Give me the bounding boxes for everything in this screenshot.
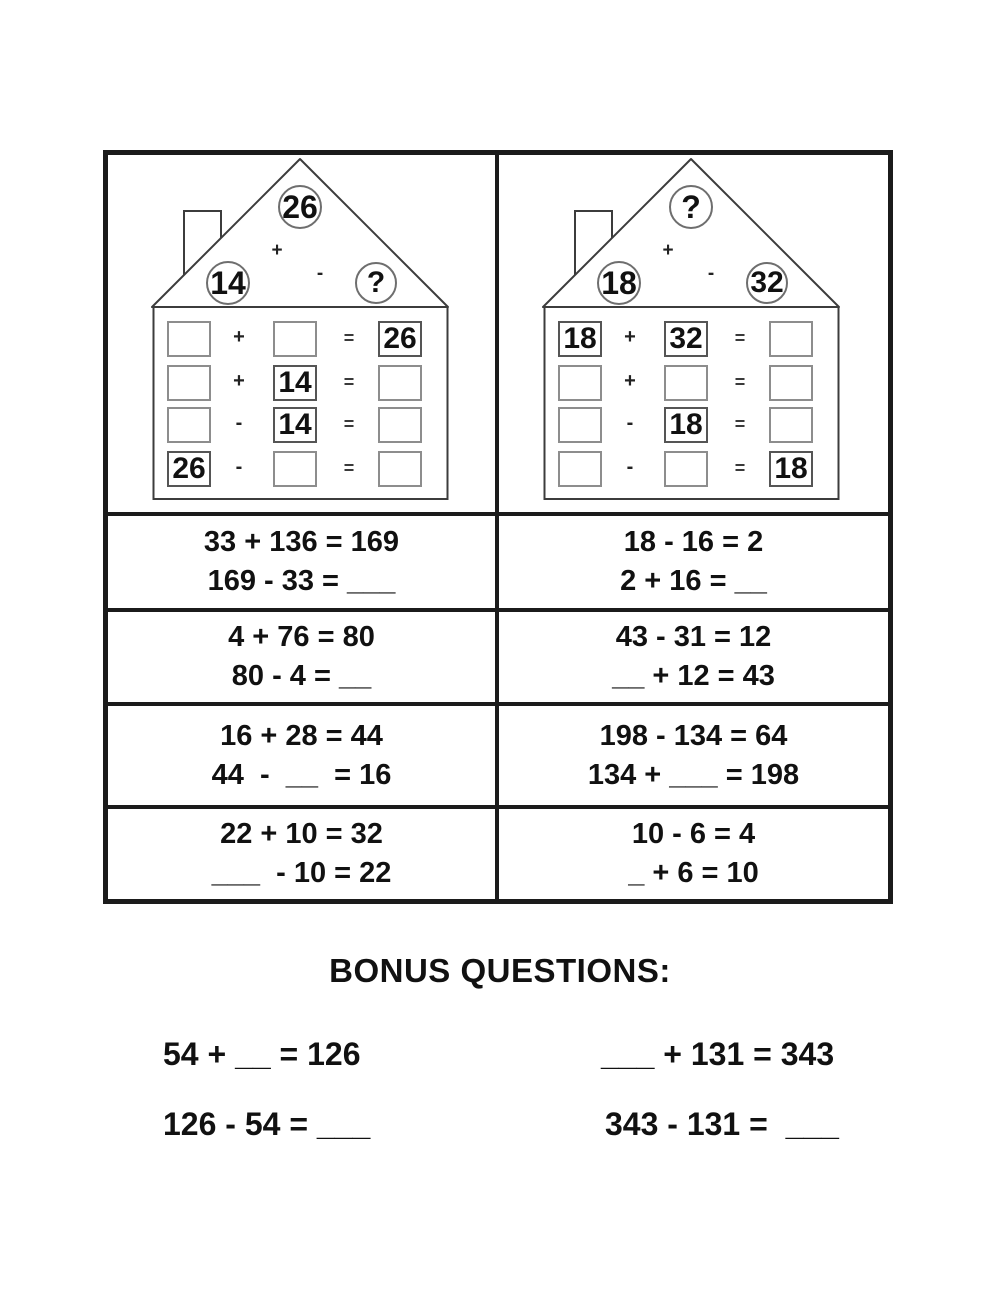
equals-sign: = [337,328,361,349]
fact-family-house-left: 26 + - 14 ? + = 26 + 14 = [108,155,495,512]
plus-sign: + [618,326,642,349]
house-box-a[interactable] [167,321,211,357]
bonus-equation: 126 - 54 = ___ [163,1106,370,1143]
house-box-c: 18 [769,451,813,487]
house-row: - = 18 [544,451,839,487]
problem-line: 43 - 31 = 12 [616,618,772,657]
house-cell-left: 26 + - 14 ? + = 26 + 14 = [108,155,499,512]
house-box-a[interactable] [558,407,602,443]
roof-minus-sign: - [699,263,723,285]
house-box-c[interactable] [378,365,422,401]
minus-sign: - [227,456,251,479]
minus-sign: - [618,456,642,479]
house-box-b: 14 [273,365,317,401]
bonus-equation: ___ + 131 = 343 [601,1036,834,1073]
roof-addend-left-circle: 18 [597,261,641,305]
problem-cell: 18 - 16 = 2 2 + 16 = __ [499,512,888,608]
house-cell-right: ? + - 18 32 18 + 32 = + = [499,155,888,512]
house-row: + = 26 [153,321,448,357]
house-box-b: 32 [664,321,708,357]
problem-line: 44 - __ = 16 [212,756,392,795]
problem-line: __ + 12 = 43 [612,657,775,696]
plus-sign: + [227,370,251,393]
roof-sum-circle: 26 [278,185,322,229]
house-row: + 14 = [153,365,448,401]
house-box-b[interactable] [664,451,708,487]
roof-addend-right-circle: 32 [746,262,788,304]
plus-sign: + [618,370,642,393]
house-box-a[interactable] [167,365,211,401]
problem-line: ___ - 10 = 22 [212,854,392,893]
house-box-c[interactable] [769,365,813,401]
bonus-title: BONUS QUESTIONS: [0,952,1000,990]
house-box-c: 26 [378,321,422,357]
house-box-c[interactable] [378,451,422,487]
problem-cell: 4 + 76 = 80 80 - 4 = __ [108,608,499,702]
minus-sign: - [227,412,251,435]
house-equation-rows: 18 + 32 = + = - 18 = [544,307,839,499]
house-row: - 14 = [153,407,448,443]
problem-cell: 16 + 28 = 44 44 - __ = 16 [108,702,499,805]
problem-line: 134 + ___ = 198 [588,756,799,795]
problem-line: 198 - 134 = 64 [600,717,788,756]
equals-sign: = [728,414,752,435]
house-row: + = [544,365,839,401]
house-box-a[interactable] [558,451,602,487]
fact-family-house-right: ? + - 18 32 18 + 32 = + = [499,155,886,512]
minus-sign: - [618,412,642,435]
problem-cell: 43 - 31 = 12 __ + 12 = 43 [499,608,888,702]
house-row: - 18 = [544,407,839,443]
problem-cell: 33 + 136 = 169 169 - 33 = ___ [108,512,499,608]
house-box-c[interactable] [769,407,813,443]
house-box-c[interactable] [378,407,422,443]
house-box-b[interactable] [273,451,317,487]
bonus-equation: 54 + __ = 126 [163,1036,361,1073]
house-box-c[interactable] [769,321,813,357]
bonus-equation: 343 - 131 = ___ [605,1106,839,1143]
house-box-a[interactable] [558,365,602,401]
equals-sign: = [728,372,752,393]
house-row: 26 - = [153,451,448,487]
roof-minus-sign: - [308,263,332,285]
problem-line: 80 - 4 = __ [232,657,371,696]
house-box-a: 26 [167,451,211,487]
house-box-a[interactable] [167,407,211,443]
plus-sign: + [227,326,251,349]
problem-cell: 10 - 6 = 4 _ + 6 = 10 [499,805,888,899]
house-row: 18 + 32 = [544,321,839,357]
problem-line: 4 + 76 = 80 [228,618,375,657]
house-box-b: 18 [664,407,708,443]
roof-addend-right-circle: ? [355,262,397,304]
problem-cell: 198 - 134 = 64 134 + ___ = 198 [499,702,888,805]
equals-sign: = [337,458,361,479]
equals-sign: = [728,328,752,349]
house-box-b[interactable] [273,321,317,357]
roof-sum-circle: ? [669,185,713,229]
worksheet-table: 26 + - 14 ? + = 26 + 14 = [103,150,893,904]
problem-cell: 22 + 10 = 32 ___ - 10 = 22 [108,805,499,899]
house-box-b[interactable] [664,365,708,401]
problem-line: 16 + 28 = 44 [220,717,383,756]
equals-sign: = [337,414,361,435]
problem-line: 169 - 33 = ___ [208,562,396,601]
roof-plus-sign: + [265,240,289,262]
problem-line: 22 + 10 = 32 [220,815,383,854]
house-equation-rows: + = 26 + 14 = - 14 = [153,307,448,499]
roof-plus-sign: + [656,240,680,262]
equals-sign: = [728,458,752,479]
problem-line: _ + 6 = 10 [628,854,759,893]
equals-sign: = [337,372,361,393]
problem-line: 2 + 16 = __ [620,562,767,601]
problem-line: 33 + 136 = 169 [204,523,399,562]
house-box-b: 14 [273,407,317,443]
house-box-a: 18 [558,321,602,357]
roof-addend-left-circle: 14 [206,261,250,305]
problem-line: 18 - 16 = 2 [624,523,763,562]
problem-line: 10 - 6 = 4 [632,815,755,854]
